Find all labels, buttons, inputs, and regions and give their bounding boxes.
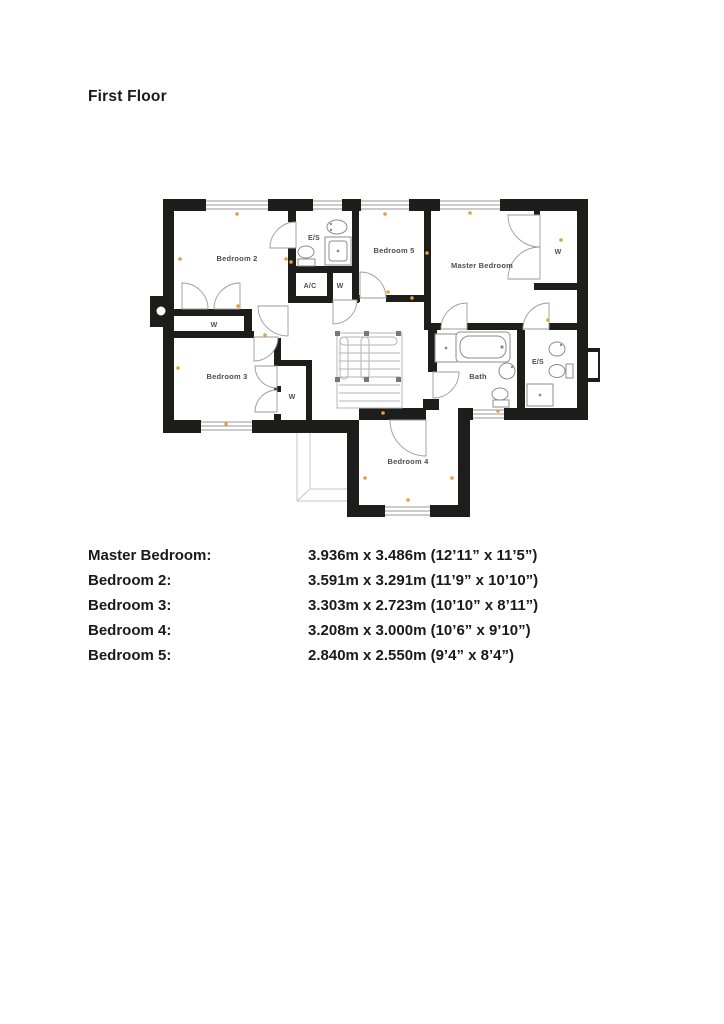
- door-arc: [182, 283, 208, 309]
- toilet-icon: [549, 364, 573, 378]
- room-label-w-master: W: [555, 249, 562, 256]
- page-title: First Floor: [88, 88, 167, 106]
- room-label-ac: A/C: [304, 283, 317, 290]
- door-arc: [360, 272, 386, 298]
- sink-icon: [499, 363, 515, 379]
- ensuite-master-fixtures: [527, 342, 573, 406]
- door-arc: [214, 283, 240, 309]
- door-arc: [433, 372, 459, 398]
- room-name: Bedroom 5:: [88, 643, 308, 668]
- window: [471, 408, 506, 420]
- door-arc: [508, 215, 540, 247]
- room-name: Master Bedroom:: [88, 543, 308, 568]
- bathtub-icon: [456, 332, 510, 362]
- room-size: 3.208m x 3.000m (10’6” x 9’10”): [308, 618, 531, 643]
- room-label-bedroom-5: Bedroom 5: [374, 246, 415, 255]
- shower-icon: [435, 334, 457, 362]
- room-size: 3.303m x 2.723m (10’10” x 8’11”): [308, 593, 538, 618]
- window: [199, 420, 254, 433]
- door-arc: [258, 306, 288, 336]
- room-name: Bedroom 3:: [88, 593, 308, 618]
- room-name: Bedroom 4:: [88, 618, 308, 643]
- shower-icon: [527, 384, 553, 406]
- room-label-w-hall: W: [337, 283, 344, 290]
- door-arc: [523, 303, 549, 329]
- chimney: [150, 296, 174, 327]
- door-arc: [441, 303, 467, 329]
- table-row: Bedroom 5: 2.840m x 2.550m (9’4” x 8’4”): [88, 643, 538, 668]
- bathroom-fixtures: [435, 332, 515, 407]
- room-name: Bedroom 2:: [88, 568, 308, 593]
- door-arc: [390, 420, 426, 456]
- sink-icon: [327, 220, 347, 234]
- toilet-icon: [298, 246, 315, 266]
- room-label-bedroom-2: Bedroom 2: [217, 254, 258, 263]
- interior-walls: [174, 211, 577, 420]
- door-arc: [255, 390, 277, 412]
- room-label-bedroom-4: Bedroom 4: [388, 457, 430, 466]
- room-size: 3.591m x 3.291m (11’9” x 10’10”): [308, 568, 538, 593]
- room-size: 3.936m x 3.486m (12’11” x 11’5”): [308, 543, 537, 568]
- floorplan-page: First Floor: [0, 0, 724, 1024]
- room-size: 2.840m x 2.550m (9’4” x 8’4”): [308, 643, 514, 668]
- table-row: Bedroom 3: 3.303m x 2.723m (10’10” x 8’1…: [88, 593, 538, 618]
- room-label-master-bedroom: Master Bedroom: [451, 261, 513, 270]
- room-label-w-bed2: W: [211, 322, 218, 329]
- ensuite-top-fixtures: [298, 220, 351, 266]
- room-label-bath: Bath: [469, 372, 487, 381]
- door-arc: [270, 222, 296, 248]
- room-label-bedroom-3: Bedroom 3: [207, 372, 248, 381]
- shower-icon: [325, 237, 351, 265]
- window: [204, 199, 270, 211]
- stairs: [335, 331, 402, 408]
- room-label-es-top: E/S: [308, 235, 320, 242]
- room-label-es-master: E/S: [532, 359, 544, 366]
- room-label-w-bed3: W: [289, 394, 296, 401]
- window: [359, 199, 411, 211]
- sink-icon: [549, 342, 565, 356]
- window: [383, 505, 432, 517]
- dimensions-table: Master Bedroom: 3.936m x 3.486m (12’11” …: [88, 543, 538, 668]
- wall-bump: [586, 348, 600, 382]
- window: [311, 199, 344, 211]
- table-row: Bedroom 4: 3.208m x 3.000m (10’6” x 9’10…: [88, 618, 538, 643]
- window: [438, 199, 502, 211]
- door-arc: [255, 366, 277, 388]
- table-row: Bedroom 2: 3.591m x 3.291m (11’9” x 10’1…: [88, 568, 538, 593]
- toilet-icon: [492, 388, 509, 407]
- roof-outline: [297, 433, 347, 501]
- table-row: Master Bedroom: 3.936m x 3.486m (12’11” …: [88, 543, 538, 568]
- door-arc: [333, 300, 357, 324]
- floorplan-drawing: Bedroom 2 E/S A/C W Bedroom 5 Master Bed…: [148, 190, 604, 524]
